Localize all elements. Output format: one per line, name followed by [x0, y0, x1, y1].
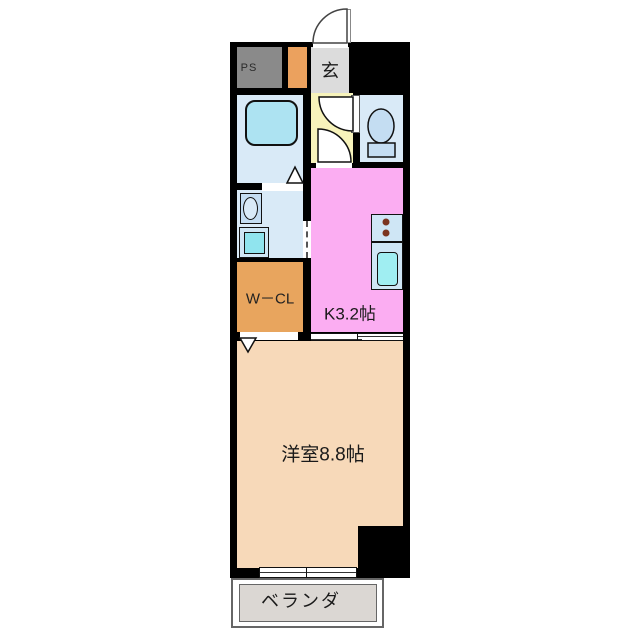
label-veranda: ベランダ	[261, 587, 341, 613]
label-wcl: W－CL	[246, 288, 294, 309]
kitchen-door-opening	[316, 162, 352, 168]
label-ps: PS	[241, 62, 258, 74]
label-main-room: 洋室8.8帖	[281, 440, 364, 467]
label-kitchen: K3.2帖	[324, 300, 376, 325]
room-toilet	[360, 95, 403, 162]
bathroom-door-opening	[262, 183, 303, 191]
washing-machine-drum	[244, 232, 265, 254]
wcl-door-opening	[240, 332, 298, 340]
washroom-opening	[303, 221, 311, 258]
hallway	[311, 93, 353, 163]
label-genkan: 玄	[321, 57, 339, 83]
toilet-door-leaf	[351, 95, 360, 133]
floor-plan: PS 玄 W－CL K3.2帖 洋室8.8帖 ベランダ	[0, 0, 640, 640]
bathtub-icon	[245, 100, 298, 146]
entrance-door-arc	[313, 9, 347, 43]
wall-block-bottom-right	[358, 526, 410, 578]
sliding-door-kitchen-room	[311, 333, 403, 341]
entrance-step	[288, 47, 307, 88]
kitchen-sink-icon	[377, 252, 398, 286]
sliding-window-veranda	[259, 567, 357, 578]
entrance-door-leaf	[343, 9, 351, 43]
wash-basin-bowl	[243, 197, 258, 220]
stove-icon	[371, 214, 403, 242]
